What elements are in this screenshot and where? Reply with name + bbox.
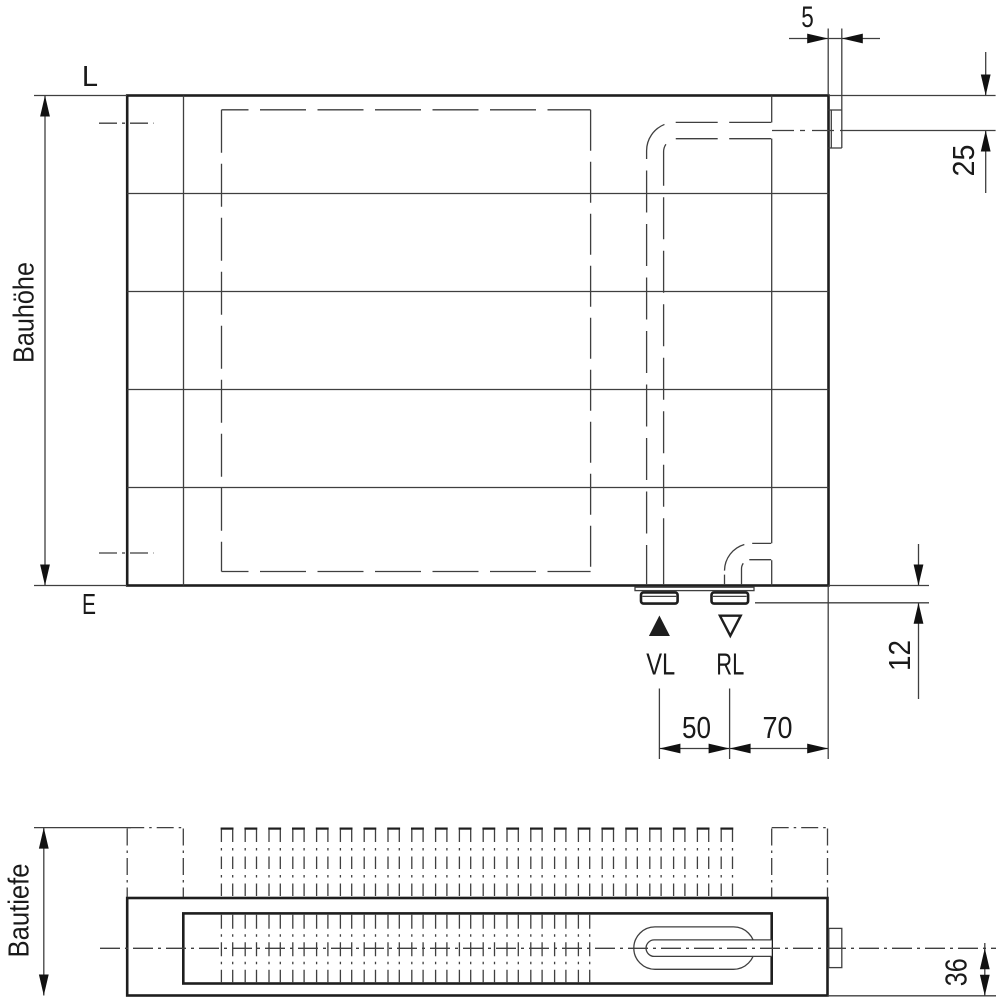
svg-text:E: E [82, 589, 96, 621]
svg-text:25: 25 [946, 145, 981, 177]
svg-text:VL: VL [646, 647, 675, 682]
svg-text:Bautiefe: Bautiefe [4, 864, 36, 958]
svg-text:70: 70 [763, 710, 793, 745]
svg-text:36: 36 [939, 958, 974, 986]
svg-text:12: 12 [882, 640, 917, 671]
svg-text:L: L [82, 61, 98, 93]
svg-text:50: 50 [682, 710, 711, 745]
svg-text:5: 5 [801, 1, 814, 34]
svg-text:Bauhöhe: Bauhöhe [9, 262, 41, 363]
svg-text:RL: RL [716, 647, 744, 682]
